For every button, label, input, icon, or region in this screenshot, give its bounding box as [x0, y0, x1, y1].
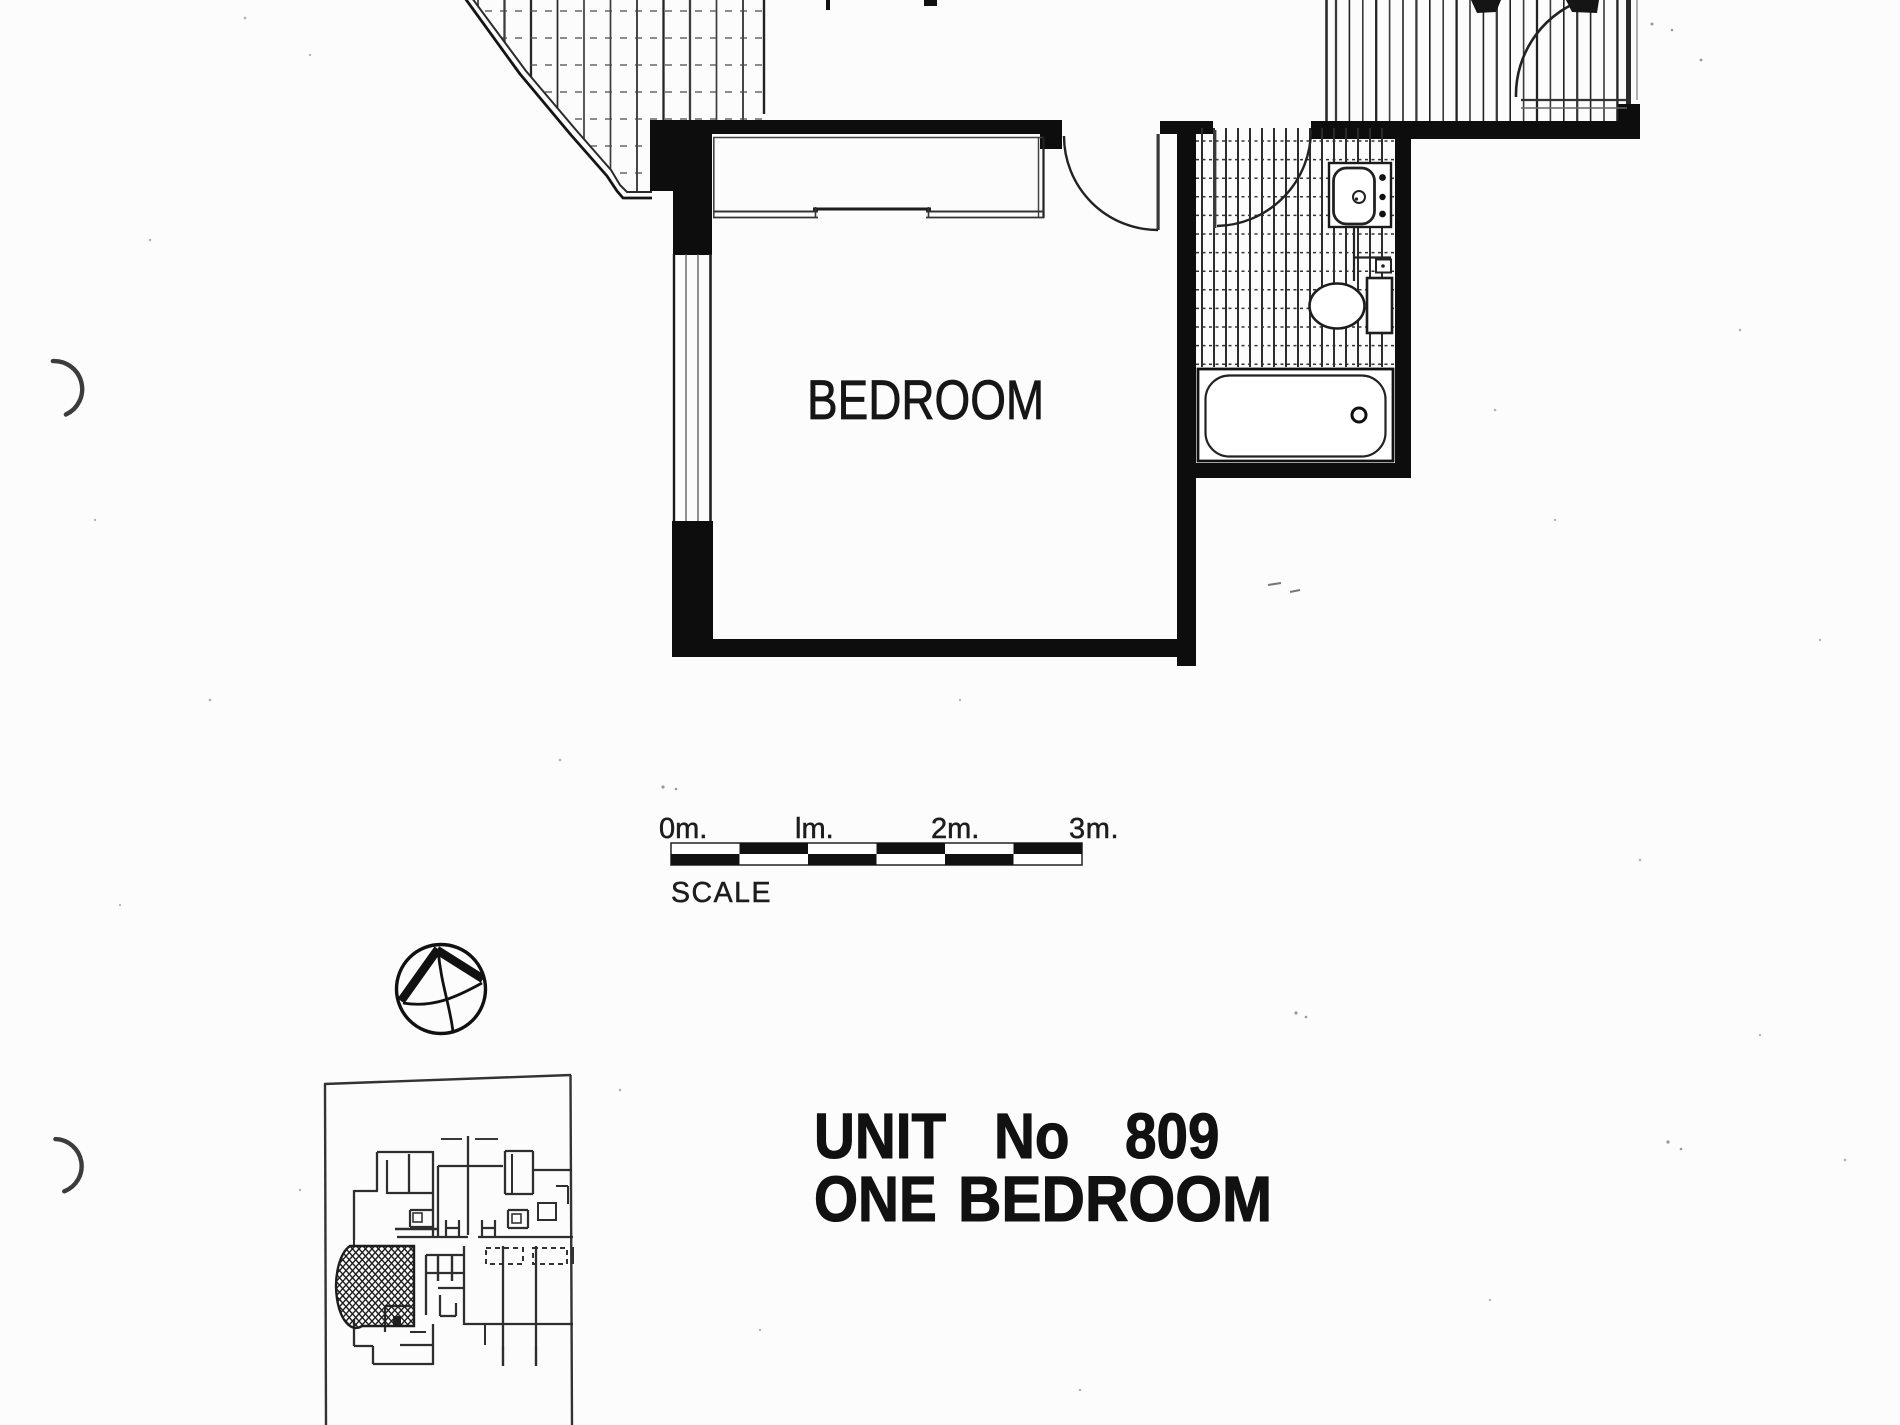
svg-text:BEDROOM: BEDROOM	[958, 1164, 1272, 1235]
svg-text:SCALE: SCALE	[671, 877, 772, 909]
svg-text:3m.: 3m.	[1069, 813, 1119, 845]
svg-text:ONE: ONE	[814, 1163, 937, 1235]
svg-text:BEDROOM: BEDROOM	[807, 369, 1044, 431]
svg-text:lm.: lm.	[795, 813, 834, 845]
svg-text:UNIT: UNIT	[814, 1100, 946, 1172]
svg-text:0m.: 0m.	[659, 813, 707, 845]
svg-text:No: No	[994, 1100, 1069, 1172]
svg-text:809: 809	[1125, 1100, 1219, 1172]
svg-text:2m.: 2m.	[931, 813, 979, 845]
